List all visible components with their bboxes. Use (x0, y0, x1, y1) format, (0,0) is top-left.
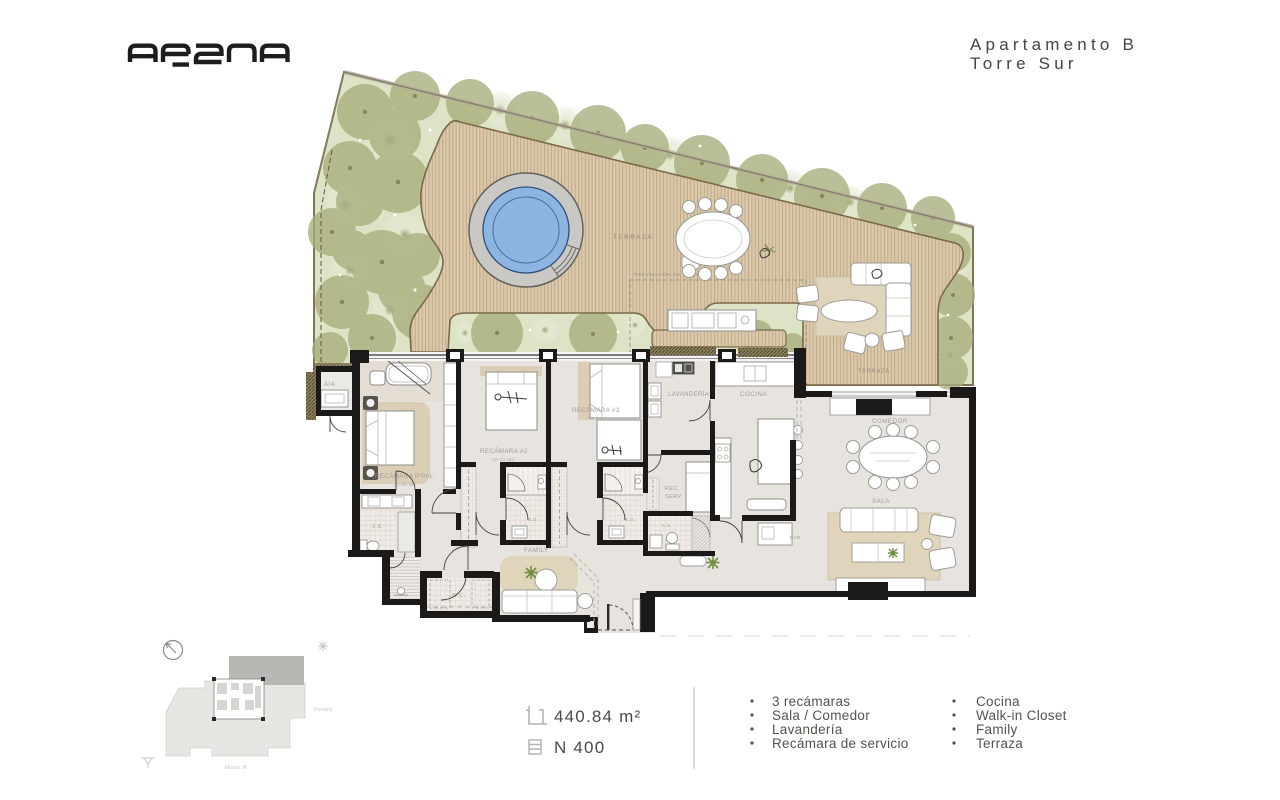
svg-text:16.5 M2: 16.5 M2 (588, 416, 607, 422)
svg-text:Recámara de servicio: Recámara de servicio (772, 736, 909, 751)
svg-text:TERRAZA: TERRAZA (613, 234, 653, 241)
svg-text:Pariamo: Pariamo (314, 707, 333, 713)
svg-text:S.S.: S.S. (528, 517, 538, 523)
svg-text:Cocina: Cocina (976, 694, 1020, 709)
svg-text:A/A: A/A (324, 382, 335, 388)
svg-text:Lavandería: Lavandería (772, 722, 843, 737)
svg-text:440.84 m²: 440.84 m² (554, 707, 641, 726)
svg-text:Family: Family (976, 722, 1018, 737)
svg-text:COCINA: COCINA (740, 391, 767, 398)
svg-text:COMEDOR: COMEDOR (872, 418, 908, 425)
svg-text:SERV.: SERV. (665, 494, 683, 500)
svg-text:REC.: REC. (665, 486, 680, 492)
svg-text:N 400: N 400 (554, 738, 605, 757)
svg-text:S.S.: S.S. (625, 517, 635, 523)
svg-text:Terraza: Terraza (976, 736, 1023, 751)
svg-text:3 recámaras: 3 recámaras (772, 694, 850, 709)
svg-text:21.90 M2: 21.90 M2 (394, 482, 416, 488)
svg-text:Torre Sur: Torre Sur (970, 54, 1078, 73)
svg-text:Apartamento B: Apartamento B (970, 35, 1138, 54)
svg-text:SALA: SALA (872, 498, 890, 505)
svg-text:LAVANDERÍA: LAVANDERÍA (668, 391, 709, 398)
svg-text:BAR: BAR (790, 535, 801, 541)
svg-text:Museo JK: Museo JK (225, 765, 248, 771)
svg-text:Sala / Comedor: Sala / Comedor (772, 708, 870, 723)
svg-text:S.S.: S.S. (662, 523, 672, 528)
svg-text:Walk-in Closet: Walk-in Closet (976, 708, 1067, 723)
svg-text:RECÁMARA #2: RECÁMARA #2 (480, 448, 528, 455)
svg-text:S.S.: S.S. (372, 524, 383, 530)
svg-text:TERRAZA: TERRAZA (858, 369, 890, 375)
svg-text:RECÁMARA P'PAL: RECÁMARA P'PAL (375, 473, 434, 480)
svg-text:RECÁMARA #3: RECÁMARA #3 (572, 407, 620, 414)
svg-text:FAMILY: FAMILY (524, 547, 549, 554)
